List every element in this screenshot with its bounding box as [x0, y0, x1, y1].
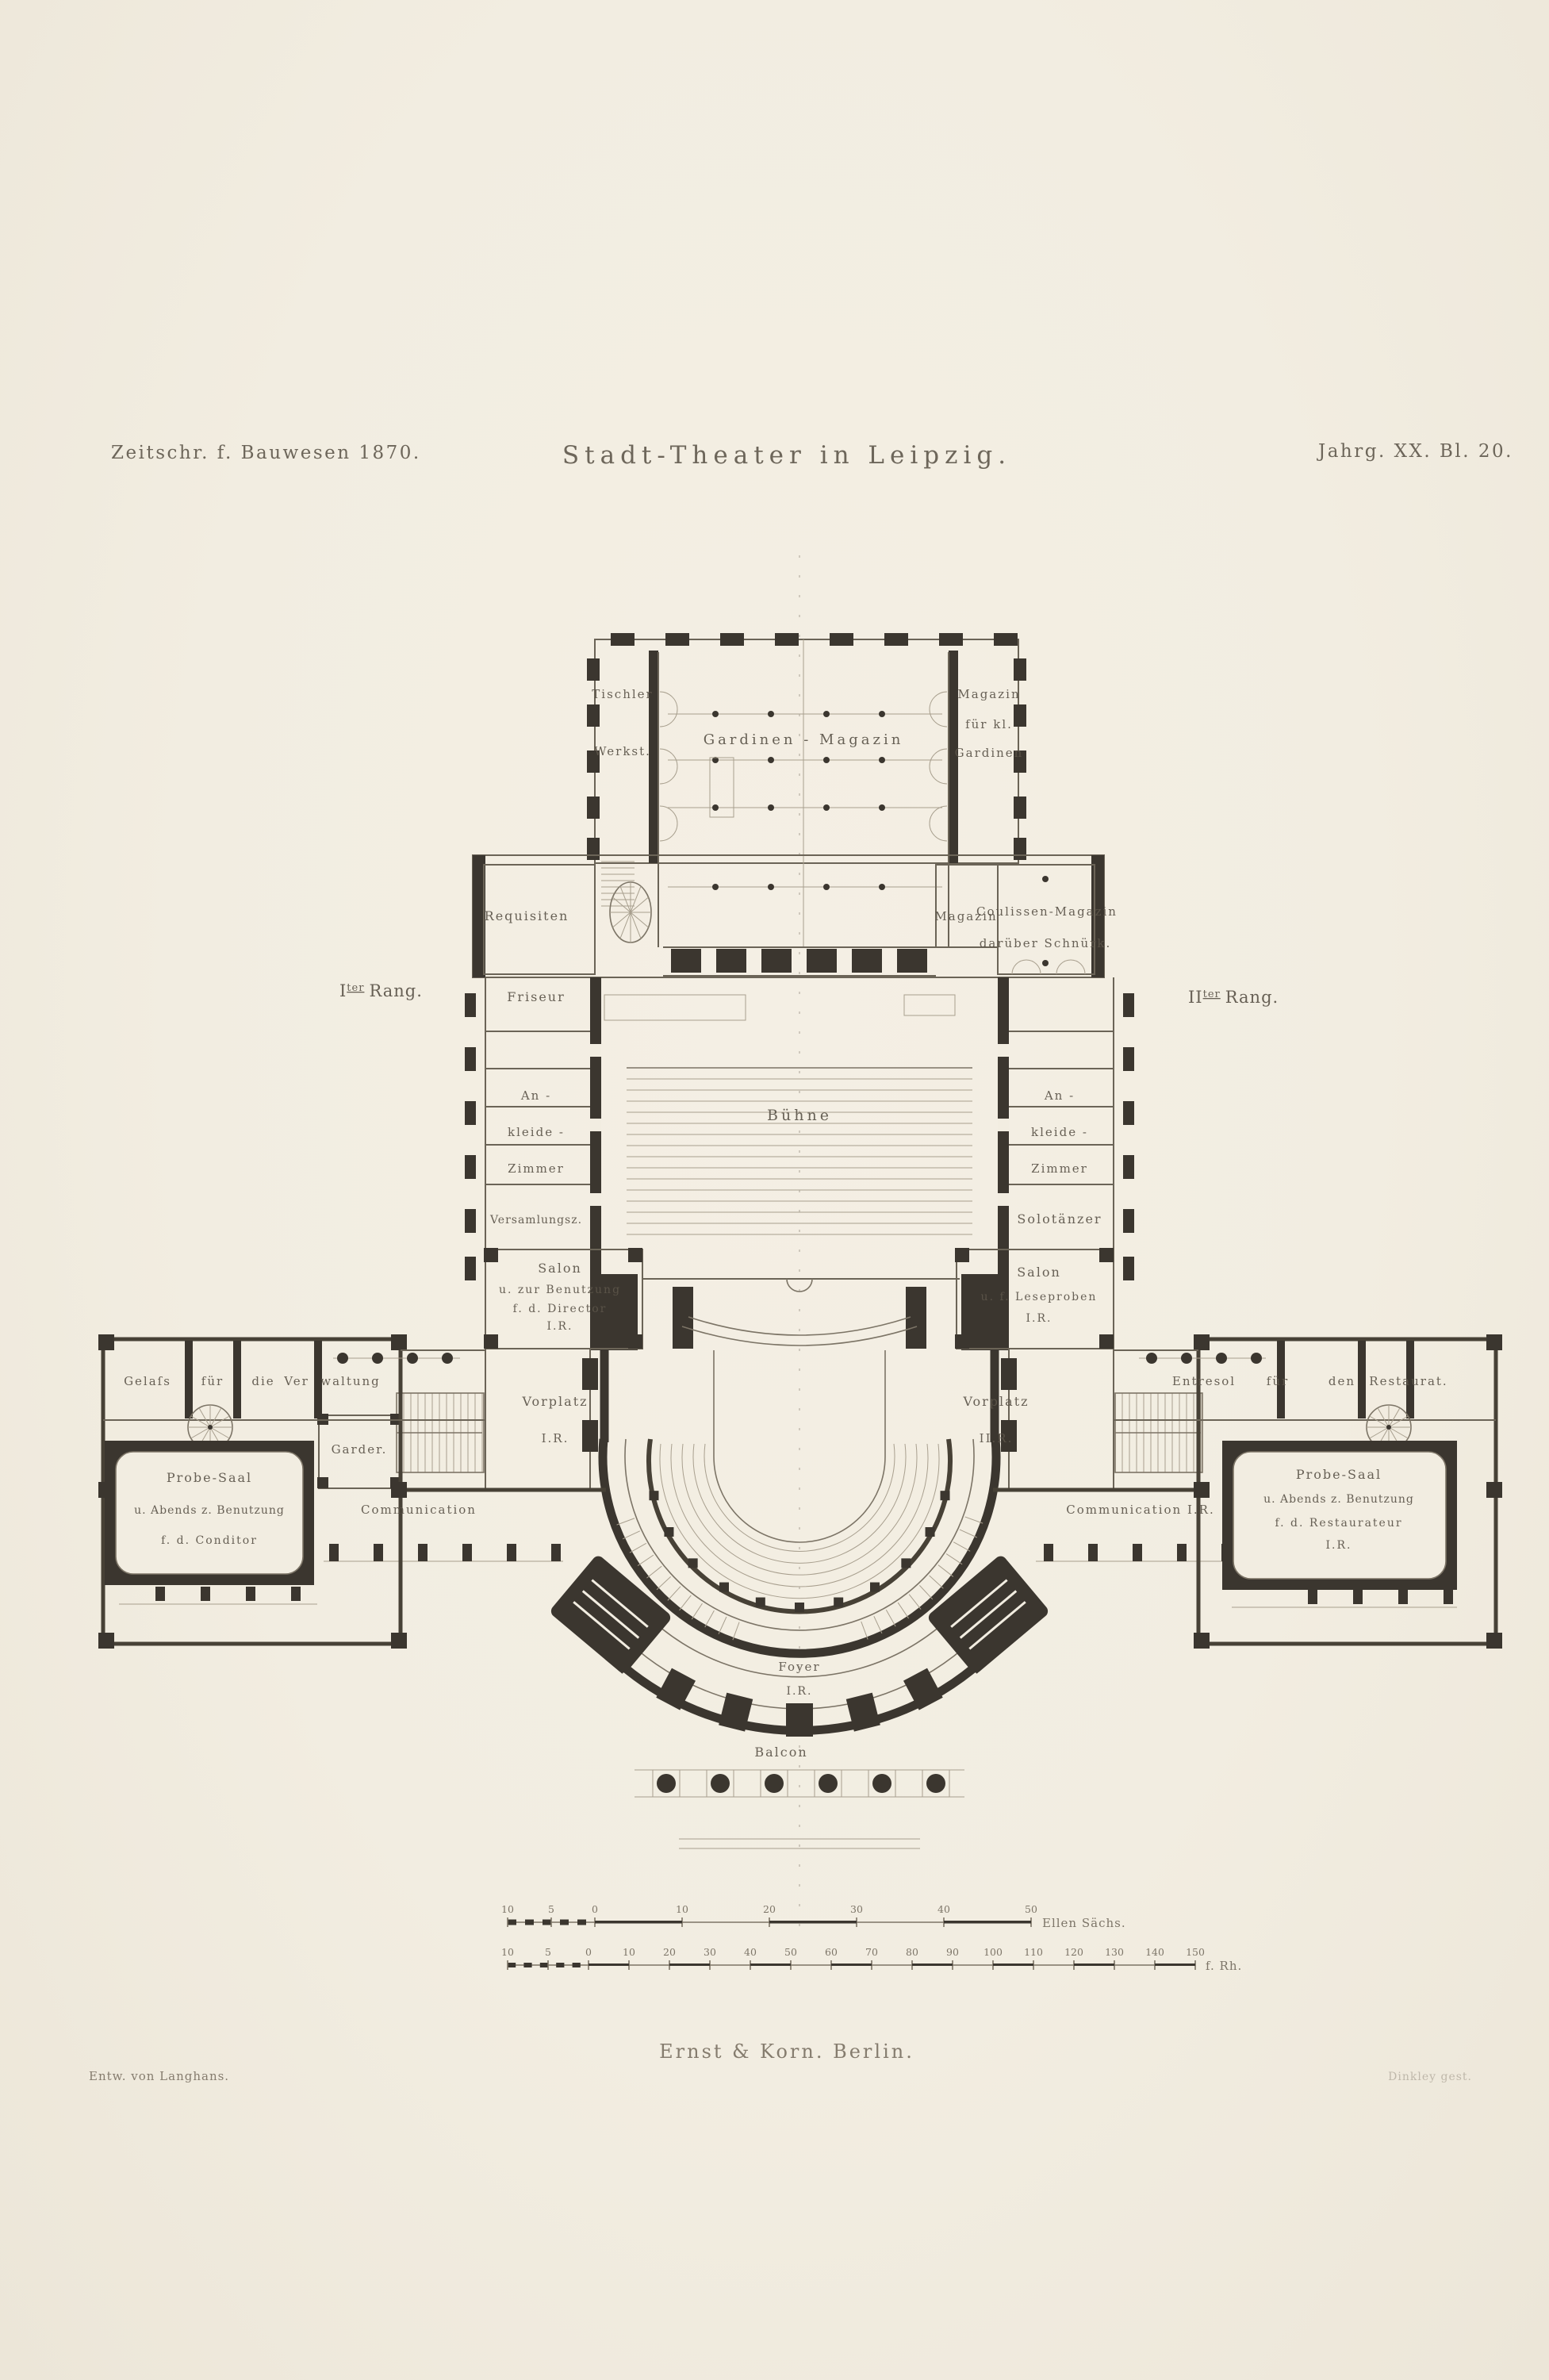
room-gelass-word2: für: [201, 1374, 224, 1388]
page-title: Stadt-Theater in Leipzig.: [562, 441, 1011, 470]
scale-tick-label: 10: [676, 1903, 688, 1915]
room-zimmer-left: Zimmer: [508, 1161, 565, 1176]
room-salon-leseproben-line2: u. f. Leseproben: [981, 1291, 1098, 1303]
corridor-communication-left: Communication: [361, 1503, 477, 1517]
designer-credit: Entw. von Langhans.: [89, 2069, 229, 2083]
scale-tick-label: 150: [1186, 1946, 1205, 1958]
room-salon-leseproben-line3: I.R.: [1026, 1312, 1052, 1325]
room-garderobe: Garder.: [332, 1442, 388, 1457]
room-tischler-line1: Tischler: [592, 687, 653, 701]
scale-tick-label: 30: [704, 1946, 716, 1958]
room-an-left: An -: [520, 1088, 551, 1103]
scale-tick-label: 70: [865, 1946, 878, 1958]
scale-tick-label: 10: [501, 1903, 514, 1915]
engraving-sheet: Zeitschr. f. Bauwesen 1870. Stadt-Theate…: [0, 0, 1549, 2380]
floor-plan: Zeitschr. f. Bauwesen 1870. Stadt-Theate…: [0, 0, 1549, 2380]
room-balcon: Balcon: [754, 1745, 807, 1760]
room-an-right: An -: [1044, 1088, 1075, 1103]
room-tischler-line2: Werkst.: [594, 744, 651, 758]
scale-tick-label: 20: [763, 1903, 776, 1915]
room-salon-director-line4: I.R.: [547, 1320, 573, 1333]
room-solotaenzer: Solotänzer: [1017, 1211, 1102, 1226]
room-vorplatz-right-line1: Vorplatz: [962, 1394, 1029, 1409]
scale-tick-label: 5: [545, 1946, 551, 1958]
room-salon-director-line2: u. zur Benutzung: [499, 1284, 621, 1296]
room-friseur: Friseur: [507, 989, 566, 1004]
scale-tick-label: 120: [1064, 1946, 1083, 1958]
room-vorplatz-right-line2: II.R.: [980, 1431, 1014, 1445]
journal-title: Zeitschr. f. Bauwesen 1870.: [111, 443, 421, 463]
room-requisiten: Requisiten: [485, 908, 569, 923]
scale-tick-label: 30: [850, 1903, 863, 1915]
scale-tick-label: 10: [501, 1946, 514, 1958]
room-gelass-word1: Gelaſs: [124, 1374, 171, 1388]
room-vorplatz-left-line1: Vorplatz: [521, 1394, 588, 1409]
room-salon-director-line3: f. d. Director: [513, 1303, 608, 1315]
scale-tick-label: 0: [592, 1903, 598, 1915]
scale-tick-label: 50: [1025, 1903, 1037, 1915]
room-foyer-line1: Foyer: [778, 1660, 820, 1674]
scale-tick-label: 130: [1105, 1946, 1124, 1958]
scale-tick-label: 50: [784, 1946, 797, 1958]
room-entresol-word1: Entresol: [1172, 1374, 1236, 1388]
room-entresol-word4: Restaurat.: [1369, 1374, 1447, 1388]
scale-rulers: Ellen Sächs. f. Rh. 10501020304050105010…: [501, 1903, 1242, 1973]
room-kleide-left: kleide -: [508, 1125, 565, 1139]
room-zimmer-right: Zimmer: [1031, 1161, 1088, 1176]
plate-number: Jahrg. XX. Bl. 20.: [1317, 441, 1513, 462]
publisher-credit: Ernst & Korn. Berlin.: [659, 2040, 914, 2063]
room-coulissen-line1: Coulissen-Magazin: [976, 904, 1118, 919]
room-probesaal-left-line1: Probe-Saal: [167, 1470, 252, 1485]
scale-tick-label: 20: [663, 1946, 676, 1958]
room-gelass-word5: waltung: [320, 1374, 381, 1388]
plan-linework: [98, 555, 1502, 1936]
room-magazin-kl-line1: Magazin: [957, 687, 1020, 701]
scale-tick-label: 140: [1145, 1946, 1164, 1958]
scale-tick-label: 110: [1024, 1946, 1043, 1958]
scale-tick-label: 40: [937, 1903, 950, 1915]
room-entresol-word3: den: [1329, 1374, 1355, 1388]
room-versammlungsz: Versamlungsz.: [489, 1214, 582, 1226]
room-entresol-word2: für: [1267, 1374, 1289, 1388]
rang-right-label: IIterRang.: [1188, 988, 1279, 1007]
room-magazin-kl-line3: Gardinen: [955, 746, 1024, 760]
room-gelass-word4: Ver: [283, 1374, 309, 1388]
room-gardinen-magazin: Gardinen - Magazin: [704, 731, 904, 748]
room-buehne: Bühne: [767, 1107, 832, 1124]
scale-tick-label: 60: [825, 1946, 838, 1958]
room-salon-director-line1: Salon: [538, 1261, 582, 1276]
scale-tick-label: 5: [548, 1903, 554, 1915]
room-vorplatz-left-line2: I.R.: [542, 1431, 569, 1445]
scale-tick-label: 80: [906, 1946, 918, 1958]
room-magazin-kl-line2: für kl.: [965, 717, 1013, 731]
scale-unit-fuss: f. Rh.: [1206, 1959, 1242, 1973]
room-probesaal-right-line4: I.R.: [1326, 1539, 1352, 1552]
corridor-communication-right: Communication I.R.: [1066, 1503, 1214, 1517]
scale-tick-label: 10: [623, 1946, 635, 1958]
room-kleide-right: kleide -: [1031, 1125, 1088, 1139]
scale-unit-ellen: Ellen Sächs.: [1042, 1916, 1126, 1930]
room-salon-leseproben-line1: Salon: [1017, 1265, 1061, 1280]
room-probesaal-right-line2: u. Abends z. Benutzung: [1263, 1493, 1414, 1506]
scale-tick-label: 90: [946, 1946, 959, 1958]
engraver-credit: Dinkley gest.: [1388, 2071, 1472, 2083]
scale-tick-label: 0: [585, 1946, 592, 1958]
room-gelass-word3: die: [251, 1374, 274, 1388]
room-coulissen-line2: darüber Schnürk.: [980, 936, 1111, 950]
room-probesaal-left-line2: u. Abends z. Benutzung: [134, 1504, 285, 1517]
room-probesaal-right-line3: f. d. Restaurateur: [1275, 1517, 1402, 1530]
scale-tick-label: 100: [983, 1946, 1003, 1958]
scale-tick-label: 40: [744, 1946, 757, 1958]
room-foyer-line2: I.R.: [787, 1685, 813, 1698]
rang-left-label: IterRang.: [339, 981, 423, 1000]
room-probesaal-right-line1: Probe-Saal: [1296, 1467, 1382, 1482]
room-probesaal-left-line3: f. d. Conditor: [161, 1534, 258, 1547]
